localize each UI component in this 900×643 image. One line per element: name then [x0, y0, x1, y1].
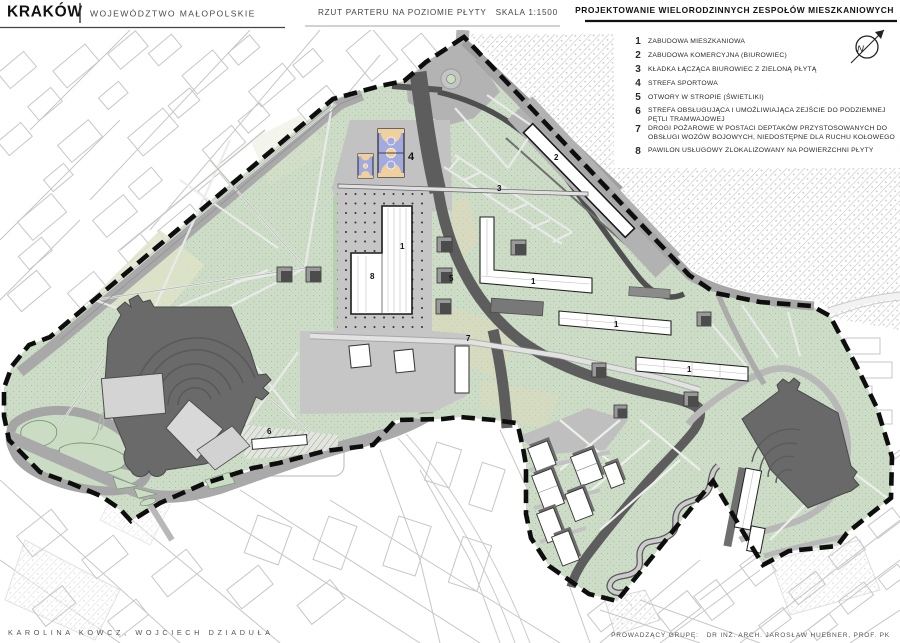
svg-text:DROGI POŻAROWE W POSTACI DEPTA: DROGI POŻAROWE W POSTACI DEPTAKÓW PRZYST… [648, 123, 887, 132]
svg-text:OTWORY W STROPIE (ŚWIETLIKI): OTWORY W STROPIE (ŚWIETLIKI) [648, 92, 764, 101]
svg-text:PROWADZĄCY GRUPĘ: DR INŻ. AR: PROWADZĄCY GRUPĘ: DR INŻ. ARCH. JAROSŁAW… [611, 630, 890, 639]
svg-text:1: 1 [635, 36, 641, 47]
svg-text:2: 2 [554, 153, 559, 162]
svg-text:5: 5 [635, 92, 641, 103]
svg-text:8: 8 [370, 272, 375, 281]
svg-text:1: 1 [531, 277, 536, 286]
svg-text:3: 3 [497, 184, 502, 193]
svg-text:6: 6 [635, 106, 641, 117]
svg-text:KŁADKA ŁĄCZĄCA BIUROWIEC Z ZIE: KŁADKA ŁĄCZĄCA BIUROWIEC Z ZIELONĄ PŁYTĄ [648, 66, 817, 73]
svg-text:4: 4 [408, 151, 415, 163]
svg-text:STREFA OBSŁUGUJĄCA I UMOŻLIWIA: STREFA OBSŁUGUJĄCA I UMOŻLIWIAJĄCA ZEJŚC… [648, 105, 886, 114]
svg-text:5: 5 [449, 274, 454, 283]
svg-text:N: N [857, 44, 864, 55]
svg-text:OBSŁUGI WOZÓW BOJOWYCH, NIEDOS: OBSŁUGI WOZÓW BOJOWYCH, NIEDOSTĘPNE DLA … [648, 132, 895, 141]
svg-text:8: 8 [635, 146, 641, 157]
svg-text:KRAKÓW: KRAKÓW [7, 3, 83, 21]
svg-text:PĘTLI TRAMWAJOWEJ: PĘTLI TRAMWAJOWEJ [648, 116, 725, 123]
svg-text:RZUT PARTERU NA POZIOMIE PŁYTY: RZUT PARTERU NA POZIOMIE PŁYTY SKALA 1:1… [318, 8, 558, 17]
svg-text:2: 2 [635, 50, 641, 61]
svg-text:1: 1 [687, 365, 692, 374]
svg-text:PAWILON USŁUGOWY ZLOKALIZOWANY: PAWILON USŁUGOWY ZLOKALIZOWANY NA POWIER… [648, 147, 874, 154]
svg-text:3: 3 [635, 64, 641, 75]
svg-text:6: 6 [267, 427, 272, 436]
svg-text:1: 1 [400, 242, 405, 251]
svg-text:ZABUDOWA MIESZKANIOWA: ZABUDOWA MIESZKANIOWA [648, 38, 745, 45]
svg-text:PROJEKTOWANIE WIELORODZINNYCH: PROJEKTOWANIE WIELORODZINNYCH ZESPOŁÓW M… [575, 4, 894, 15]
svg-text:STREFA SPORTOWA: STREFA SPORTOWA [648, 80, 718, 87]
svg-text:7: 7 [635, 124, 641, 135]
svg-text:4: 4 [635, 78, 641, 89]
svg-text:KAROLINA KOWCZ, WOJCIECH DZIAD: KAROLINA KOWCZ, WOJCIECH DZIADUŁA [8, 628, 274, 637]
svg-text:WOJEWÓDZTWO MAŁOPOLSKIE: WOJEWÓDZTWO MAŁOPOLSKIE [90, 9, 256, 19]
svg-text:7: 7 [466, 334, 471, 343]
svg-text:1: 1 [614, 320, 619, 329]
svg-text:ZABUDOWA KOMERCYJNA (BIUROWIEC: ZABUDOWA KOMERCYJNA (BIUROWIEC) [648, 52, 787, 59]
